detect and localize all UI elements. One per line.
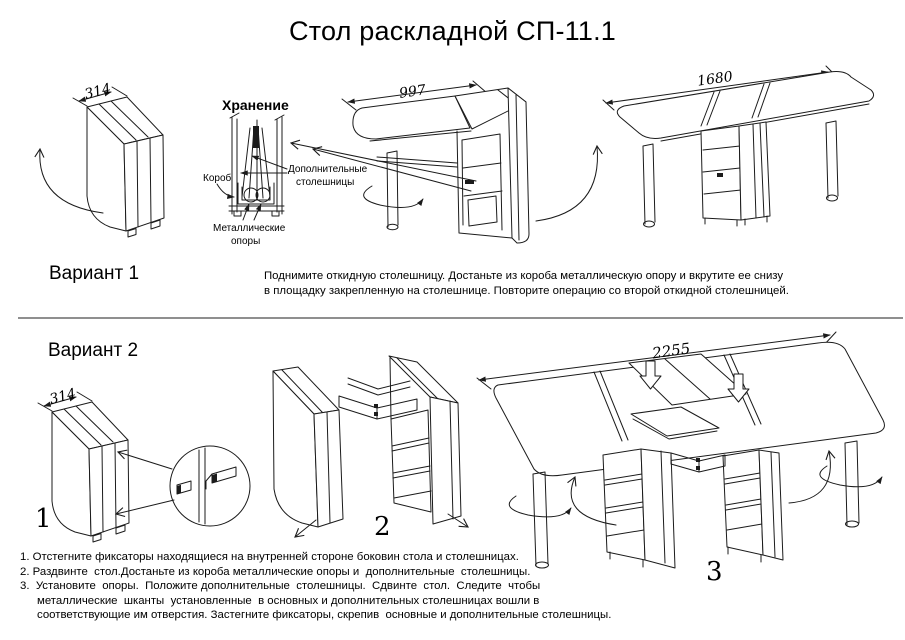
- storage-supports-label-1: Металлические: [213, 223, 286, 234]
- right-leaf-arc-arrow: [789, 451, 830, 503]
- variant2-step3-drawing: 2255: [477, 332, 884, 568]
- variant2-step1-drawing: 314: [38, 386, 250, 542]
- dimension-1680: 1680: [696, 69, 734, 90]
- variant1-folded-table-drawing: 314: [40, 81, 164, 237]
- storage-supports-label-2: опоры: [231, 236, 260, 247]
- screw-leg-rotation-arrow: [364, 186, 423, 207]
- assembly-instruction-sheet: Стол раскладной СП-11.1 Вариант 1 Подним…: [0, 0, 905, 640]
- screw-left-leg-rotation-arrow: [509, 496, 571, 517]
- storage-extra-tops-label-2: столешницы: [296, 177, 354, 188]
- storage-extra-tops-label-1: Дополнительные: [288, 164, 368, 175]
- dimension-997: 997: [398, 82, 427, 102]
- diagram-artwork: 314 Хранение Короб Дополнительные столеш…: [0, 0, 905, 640]
- lift-leaf-arc-arrow: [536, 146, 597, 221]
- storage-box-label: Короб: [203, 172, 232, 184]
- variant1-open-table-drawing: 1680: [603, 66, 874, 227]
- variant1-half-open-table-drawing: 997: [342, 81, 597, 243]
- storage-title: Хранение: [222, 97, 289, 113]
- dimension-314-v2: 314: [48, 386, 78, 408]
- variant2-step2-drawing: [273, 356, 468, 537]
- dimension-314-v1: 314: [83, 81, 113, 103]
